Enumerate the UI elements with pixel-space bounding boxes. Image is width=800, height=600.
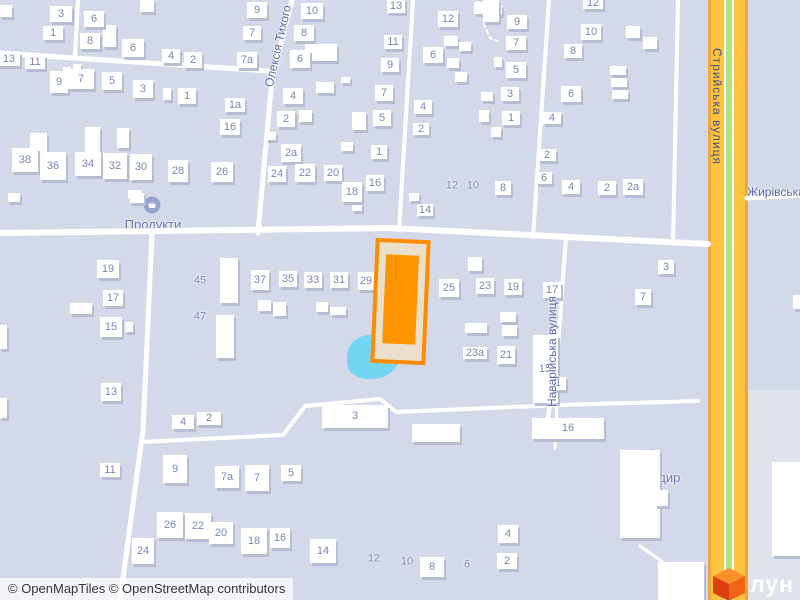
- lun-watermark[interactable]: лун: [712, 566, 794, 600]
- building: [140, 0, 154, 12]
- building: 26: [211, 162, 233, 182]
- house-number: 8: [301, 28, 307, 39]
- building: [125, 322, 133, 332]
- building: 36: [40, 152, 66, 180]
- building: [266, 132, 276, 140]
- street-road: [75, 0, 78, 56]
- house-number: 5: [379, 113, 385, 124]
- building: 9: [163, 455, 187, 483]
- building: [0, 398, 7, 418]
- building: [447, 58, 459, 68]
- building: 17: [103, 290, 123, 306]
- building: 6: [536, 172, 552, 184]
- house-number: 3: [663, 262, 669, 273]
- building: 6: [122, 39, 144, 57]
- building: [409, 193, 419, 201]
- building: 25: [439, 279, 459, 297]
- building: 7: [375, 85, 393, 101]
- house-number: 13: [390, 1, 402, 12]
- house-number: 33: [307, 275, 319, 286]
- building: 4: [283, 88, 303, 104]
- building: [479, 110, 489, 122]
- house-number: 2: [206, 413, 212, 424]
- street-road: [0, 228, 708, 244]
- footpath: [484, 24, 500, 42]
- building: 2а: [623, 179, 643, 195]
- lun-cube-icon: [712, 566, 746, 600]
- building: 20: [324, 165, 342, 181]
- house-number: 30: [135, 162, 147, 173]
- house-number: 6: [430, 50, 436, 61]
- building: 28: [168, 160, 188, 182]
- house-number: 7: [254, 473, 260, 484]
- building: 2: [197, 412, 221, 425]
- building: 7: [635, 289, 651, 305]
- map-canvas[interactable]: 3618642131197531977а1а163836343230282610…: [0, 0, 800, 600]
- building: 14: [310, 539, 336, 563]
- building: 10: [301, 3, 323, 19]
- house-number: 6: [91, 14, 97, 25]
- building: 38: [12, 148, 38, 172]
- house-number: 20: [215, 528, 227, 539]
- house-number: 10: [585, 27, 597, 38]
- house-number: 19: [507, 282, 519, 293]
- house-number: 4: [568, 182, 574, 193]
- house-number: 24: [271, 169, 283, 180]
- house-number: 19: [102, 264, 114, 275]
- house-number: 2: [190, 55, 196, 66]
- building: [130, 193, 144, 203]
- house-number: 1: [50, 28, 56, 39]
- building: 8: [495, 181, 511, 195]
- building: [444, 36, 458, 46]
- building: [352, 203, 362, 211]
- building: 12: [583, 0, 603, 9]
- house-number: 20: [327, 168, 339, 179]
- house-number: 36: [47, 161, 59, 172]
- house-number: 2а: [285, 148, 297, 159]
- building: 4: [562, 180, 580, 194]
- building: 6: [84, 11, 104, 27]
- house-number: 10: [467, 181, 479, 192]
- building: [655, 490, 668, 506]
- building: 37: [251, 270, 269, 290]
- building: [793, 295, 800, 309]
- house-number: 22: [192, 521, 204, 532]
- building: 7а: [215, 466, 239, 488]
- house-number: 17: [107, 293, 119, 304]
- building: [117, 128, 129, 148]
- house-number: 18: [346, 187, 358, 198]
- building: [8, 193, 20, 202]
- building: 18: [342, 182, 362, 202]
- building: 22: [185, 513, 211, 539]
- house-number: 2а: [627, 182, 639, 193]
- building: [468, 257, 482, 271]
- house-number: 3: [140, 84, 146, 95]
- lun-logo-text: лун: [750, 571, 794, 598]
- building: 4: [172, 415, 194, 429]
- house-number: 29: [360, 276, 372, 287]
- building: 20: [209, 522, 233, 544]
- house-number: 8: [429, 562, 435, 573]
- building: [216, 315, 234, 358]
- house-number: 11: [104, 465, 115, 476]
- house-number: 6: [297, 54, 303, 65]
- building: [316, 82, 334, 93]
- building: 12: [438, 11, 458, 27]
- house-number: 8: [500, 183, 506, 194]
- house-number: 5: [513, 65, 519, 76]
- house-number: 23а: [466, 348, 484, 359]
- building: [620, 450, 660, 538]
- building: 16: [270, 528, 290, 548]
- house-number: 32: [109, 161, 121, 172]
- house-number: 1: [508, 113, 514, 124]
- building: 2: [598, 181, 616, 195]
- building: [483, 0, 499, 22]
- building: [459, 42, 471, 51]
- house-number: 26: [164, 520, 176, 531]
- house-number: 18: [248, 536, 260, 547]
- building: 29: [358, 272, 374, 290]
- building: 2: [184, 52, 202, 68]
- building: 13: [387, 0, 405, 13]
- building: [626, 26, 640, 38]
- building: 3: [133, 80, 153, 98]
- house-number: 5: [288, 468, 294, 479]
- building: 1: [502, 111, 520, 125]
- building: 22: [295, 164, 315, 182]
- street-name-label: Жирівська вулиця: [747, 185, 800, 199]
- house-number: 12: [587, 0, 599, 9]
- house-number: 22: [299, 168, 311, 179]
- building: 10: [581, 24, 601, 40]
- house-number: 4: [420, 102, 426, 113]
- building: [612, 90, 628, 99]
- building: 26: [157, 512, 183, 538]
- house-number: 15: [105, 322, 117, 333]
- building: [220, 258, 238, 303]
- house-number: 7: [249, 28, 255, 39]
- building: [643, 37, 657, 49]
- building: [502, 325, 517, 336]
- house-number: 9: [172, 464, 178, 475]
- house-number: 4: [505, 529, 511, 540]
- house-number: 25: [443, 283, 455, 294]
- building: [412, 424, 460, 442]
- house-number: 8: [87, 36, 93, 47]
- house-number: 31: [333, 275, 345, 286]
- building: [500, 312, 516, 322]
- house-number: 24: [137, 546, 149, 557]
- building: 8: [294, 25, 314, 41]
- building: 23: [476, 278, 494, 294]
- house-number: 4: [549, 113, 555, 124]
- building: 4: [498, 525, 518, 543]
- house-number: 47: [194, 312, 206, 323]
- building: 15: [100, 317, 122, 337]
- building: [481, 92, 493, 101]
- house-number: 9: [56, 77, 62, 88]
- building: 23а: [463, 347, 487, 359]
- building: [341, 77, 350, 83]
- building: 16: [532, 418, 604, 439]
- building: 1а: [225, 98, 245, 112]
- house-number: 7а: [241, 55, 253, 66]
- house-number: 2: [604, 183, 610, 194]
- street-name-label: Стрийська вулиця: [710, 14, 724, 198]
- building: [85, 127, 100, 155]
- house-number: 6: [464, 560, 470, 571]
- house-number: 45: [194, 276, 206, 287]
- building: 3: [322, 405, 388, 428]
- house-number: 8: [570, 46, 576, 57]
- house-number: 12: [442, 14, 454, 25]
- building: [70, 303, 92, 314]
- building: [772, 462, 800, 556]
- house-number: 7: [78, 74, 84, 85]
- house-number: 16: [224, 122, 236, 133]
- house-number: 9: [514, 17, 520, 28]
- building: 11: [100, 463, 120, 477]
- building: 9: [50, 71, 68, 93]
- house-number: 26: [216, 167, 228, 178]
- house-number: 14: [317, 546, 329, 557]
- house-number: 16: [369, 178, 381, 189]
- building: 1: [178, 88, 196, 104]
- house-number: 4: [168, 51, 174, 62]
- building: 3: [658, 260, 674, 274]
- house-number: 2: [544, 150, 550, 161]
- building: 13: [101, 383, 121, 401]
- house-number: 2: [504, 556, 510, 567]
- building: [611, 78, 627, 87]
- house-number: 34: [82, 159, 94, 170]
- building: 1: [43, 26, 63, 40]
- building: 24: [132, 538, 154, 564]
- house-number: 28: [172, 166, 184, 177]
- building: 11: [25, 55, 45, 69]
- house-number: 3: [507, 89, 513, 100]
- building: 7а: [237, 52, 257, 68]
- house-number: 12: [446, 181, 458, 192]
- building: 35: [279, 271, 297, 287]
- building: 9: [507, 15, 527, 29]
- building: [610, 66, 626, 75]
- building: 16: [366, 175, 384, 191]
- building: 18: [241, 528, 267, 554]
- street-road: [673, 0, 678, 244]
- house-number: 2: [283, 114, 289, 125]
- building: [0, 325, 7, 349]
- house-number: 1а: [229, 100, 241, 111]
- building: 32: [103, 153, 127, 179]
- building: 1: [371, 145, 387, 159]
- building: 11: [384, 35, 402, 49]
- building: 4: [162, 49, 180, 63]
- building: 21: [497, 346, 515, 364]
- building: 8: [564, 44, 582, 58]
- building: 6: [423, 47, 443, 63]
- house-number: 5: [109, 76, 115, 87]
- building: 9: [247, 2, 267, 18]
- house-number: 37: [254, 275, 266, 286]
- house-number: 7: [640, 292, 646, 303]
- house-number: 6: [568, 89, 574, 100]
- building: [0, 5, 12, 17]
- building: [316, 302, 328, 312]
- house-number: 13: [105, 387, 117, 398]
- street-name-label: Наварійська вулиця: [545, 263, 559, 441]
- house-number: 3: [352, 411, 358, 422]
- house-number: 7а: [221, 472, 233, 483]
- house-number: 11: [29, 57, 40, 68]
- building: 19: [97, 260, 119, 278]
- building: [103, 25, 116, 47]
- building: 30: [130, 154, 152, 180]
- building: [258, 300, 271, 311]
- building: 7: [245, 465, 269, 491]
- building: 19: [504, 279, 522, 295]
- building: [352, 112, 366, 130]
- building: 31: [330, 272, 348, 288]
- building: [494, 57, 502, 67]
- house-number: 9: [254, 5, 260, 16]
- building: [465, 323, 487, 333]
- building: 3: [501, 87, 519, 101]
- building: 6: [290, 50, 310, 68]
- house-number: 1: [184, 91, 190, 102]
- building: 8: [420, 557, 444, 577]
- house-number: 4: [290, 91, 296, 102]
- house-number: 7: [381, 88, 387, 99]
- building: [491, 127, 501, 137]
- house-number: 1: [376, 147, 382, 158]
- house-number: 35: [282, 274, 294, 285]
- house-number: 12: [368, 554, 380, 565]
- building: 2: [413, 123, 429, 135]
- house-number: 13: [3, 54, 15, 65]
- building: 6: [561, 86, 581, 102]
- house-number: 10: [401, 557, 413, 568]
- house-number: 4: [180, 417, 186, 428]
- building: 4: [543, 112, 561, 124]
- selected-building-footprint: [382, 254, 419, 344]
- building: 7: [506, 36, 526, 50]
- house-number: 16: [274, 533, 286, 544]
- house-number: 3: [58, 9, 64, 20]
- house-number: 23: [479, 281, 491, 292]
- building: 16: [220, 119, 240, 135]
- building: 2: [277, 111, 295, 127]
- building: 33: [304, 272, 322, 288]
- building: [658, 562, 704, 600]
- house-number: 2: [418, 124, 424, 135]
- building: 34: [75, 152, 101, 176]
- building: 2: [497, 553, 517, 569]
- building: [273, 302, 286, 316]
- building: [330, 307, 346, 315]
- map-attribution[interactable]: © OpenMapTiles © OpenStreetMap contribut…: [0, 578, 293, 600]
- house-number: 38: [19, 155, 31, 166]
- building: 3: [50, 6, 72, 22]
- house-number: 6: [130, 43, 136, 54]
- building: 4: [414, 100, 432, 114]
- building: 24: [268, 166, 286, 182]
- building: [299, 110, 312, 122]
- house-number: 11: [387, 37, 398, 48]
- house-number: 21: [500, 350, 512, 361]
- building: 2а: [281, 144, 301, 162]
- house-number: 14: [419, 205, 431, 216]
- building: 7: [68, 69, 94, 89]
- building: 14: [417, 204, 433, 216]
- house-number: 16: [562, 423, 574, 434]
- house-number: 9: [387, 60, 393, 71]
- house-number: 7: [513, 38, 519, 49]
- house-number: 10: [306, 6, 318, 17]
- building: [455, 72, 467, 82]
- building: 5: [506, 62, 526, 78]
- building: 9: [381, 58, 399, 72]
- building: 2: [538, 149, 556, 161]
- building: [341, 142, 353, 151]
- building: 8: [80, 33, 100, 49]
- building: 5: [102, 72, 122, 90]
- building: 13: [0, 52, 20, 66]
- house-number: 6: [541, 173, 547, 184]
- building: 5: [281, 465, 301, 481]
- selected-building-highlight[interactable]: [370, 238, 430, 365]
- building: [163, 88, 171, 100]
- building: 5: [373, 110, 391, 126]
- building: 7: [243, 26, 261, 40]
